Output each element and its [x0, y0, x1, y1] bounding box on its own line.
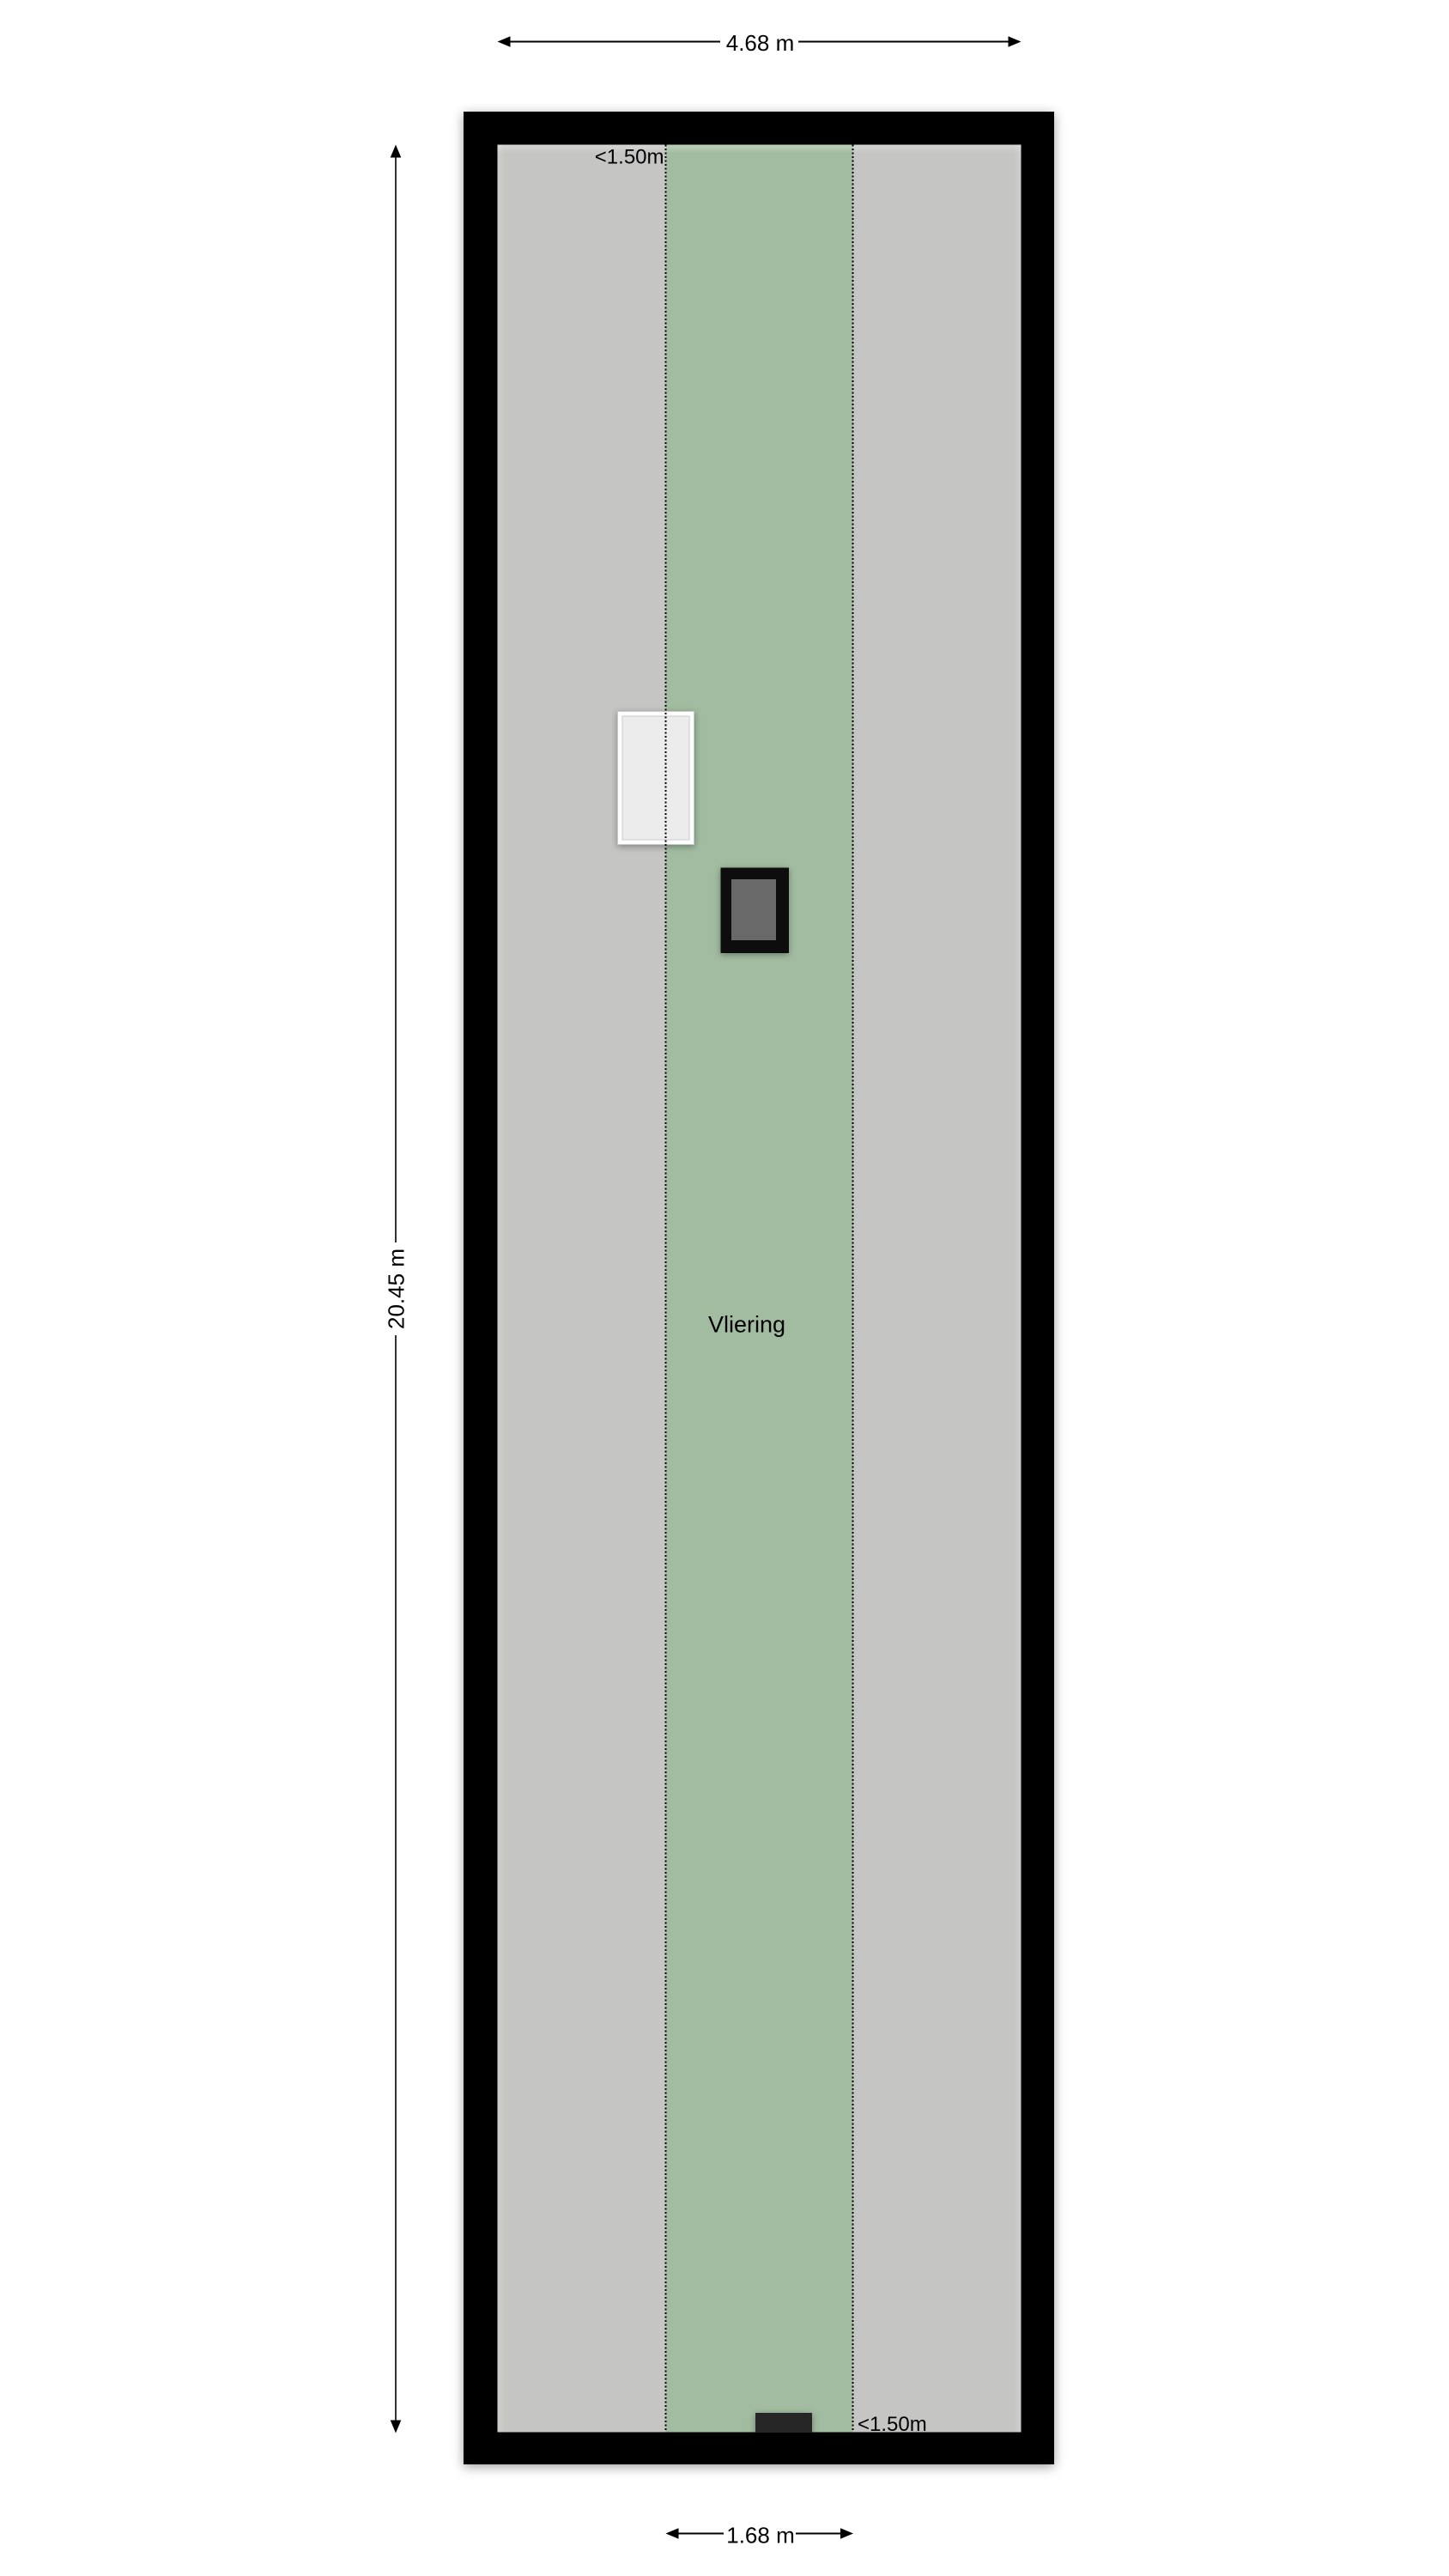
svg-text:20.45 m: 20.45 m — [384, 1249, 409, 1329]
svg-text:4.68 m: 4.68 m — [726, 30, 795, 56]
svg-text:<1.50m: <1.50m — [858, 2413, 927, 2436]
svg-text:<1.50m: <1.50m — [595, 146, 664, 169]
svg-text:1.68 m: 1.68 m — [726, 2523, 795, 2549]
svg-text:Vliering: Vliering — [708, 1312, 785, 1338]
